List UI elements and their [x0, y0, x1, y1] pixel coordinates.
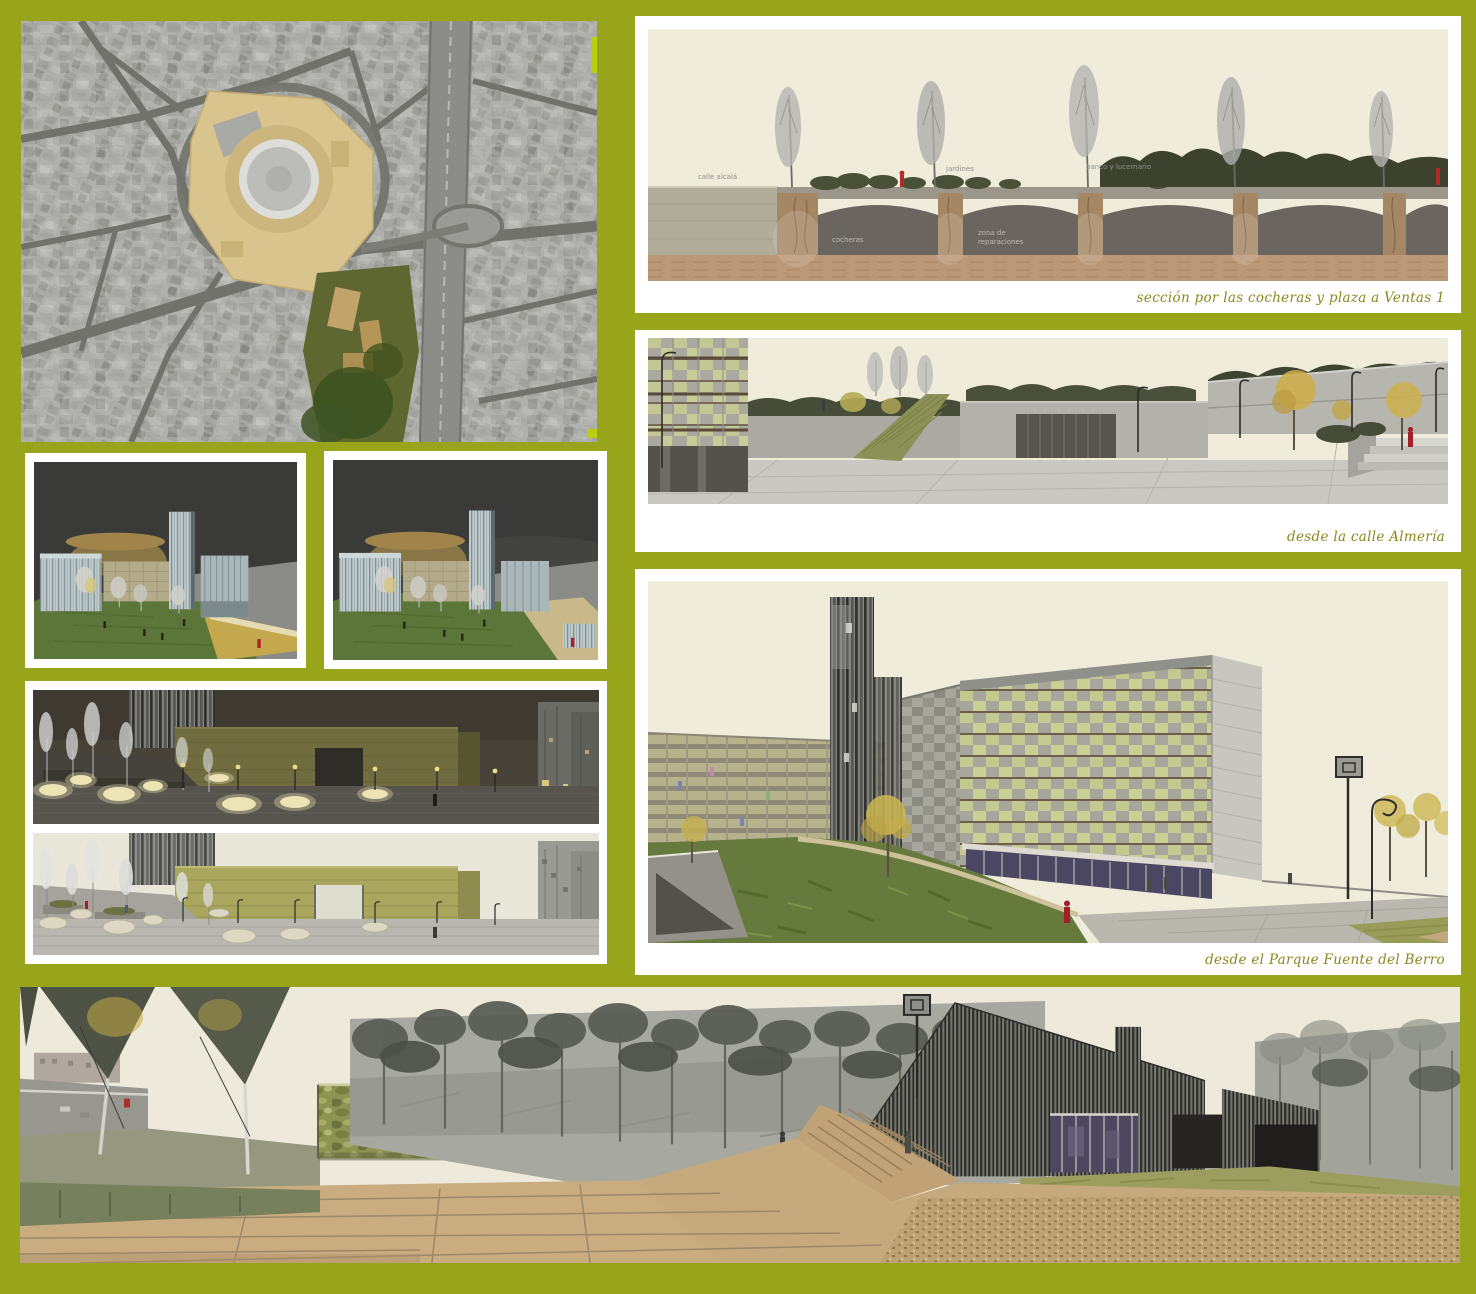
panorama-image — [20, 987, 1460, 1263]
map-project-site — [301, 265, 419, 442]
aerial-map-image — [21, 21, 597, 442]
almeria-render — [648, 338, 1448, 504]
night-city-backdrop — [538, 702, 599, 794]
model-red-figure — [257, 639, 260, 648]
aerial-map-panel — [21, 21, 597, 442]
almeria-view-panel: desde la calle Almería — [635, 330, 1461, 552]
almeria-caption: desde la calle Almería — [1287, 529, 1445, 545]
label-jardines: jardines — [945, 165, 974, 173]
almeria-red-figure — [1408, 427, 1413, 447]
section-left-wall — [648, 187, 777, 255]
model-render-1 — [34, 462, 297, 659]
day-city-backdrop — [538, 841, 599, 925]
label-banco-lucernario: banco y lucernario — [1086, 163, 1151, 171]
model-render-2 — [333, 460, 598, 660]
section-panel: calle alcalá jardines banco y lucernario… — [635, 16, 1461, 313]
section-chambers — [818, 204, 1448, 255]
model-view-panel-1 — [25, 453, 306, 668]
parque-view-panel: desde el Parque Fuente del Berro — [635, 569, 1461, 975]
parque-main-block — [960, 655, 1262, 899]
elevations-panel — [25, 681, 607, 964]
parque-render — [648, 581, 1448, 943]
label-zona-1: zona de — [978, 229, 1006, 237]
parque-caption: desde el Parque Fuente del Berro — [1205, 952, 1445, 968]
label-cocheras: cocheras — [832, 236, 864, 244]
section-caption: sección por las cocheras y plaza a Venta… — [1137, 290, 1445, 306]
presentation-board: calle alcalá jardines banco y lucernario… — [0, 0, 1476, 1294]
parque-mid-block — [902, 685, 960, 873]
model-view-panel-2 — [324, 451, 607, 669]
label-calle-alcala: calle alcalá — [698, 173, 737, 181]
section-drawing: calle alcalá jardines banco y lucernario… — [648, 29, 1448, 281]
night-figure — [433, 794, 437, 806]
almeria-left-building — [648, 338, 748, 492]
day-elevation — [33, 833, 599, 955]
night-elevation — [33, 690, 599, 824]
model-red-figure — [571, 638, 575, 647]
label-zona-2: reparaciones — [978, 238, 1024, 246]
park-panorama-panel — [20, 987, 1460, 1263]
